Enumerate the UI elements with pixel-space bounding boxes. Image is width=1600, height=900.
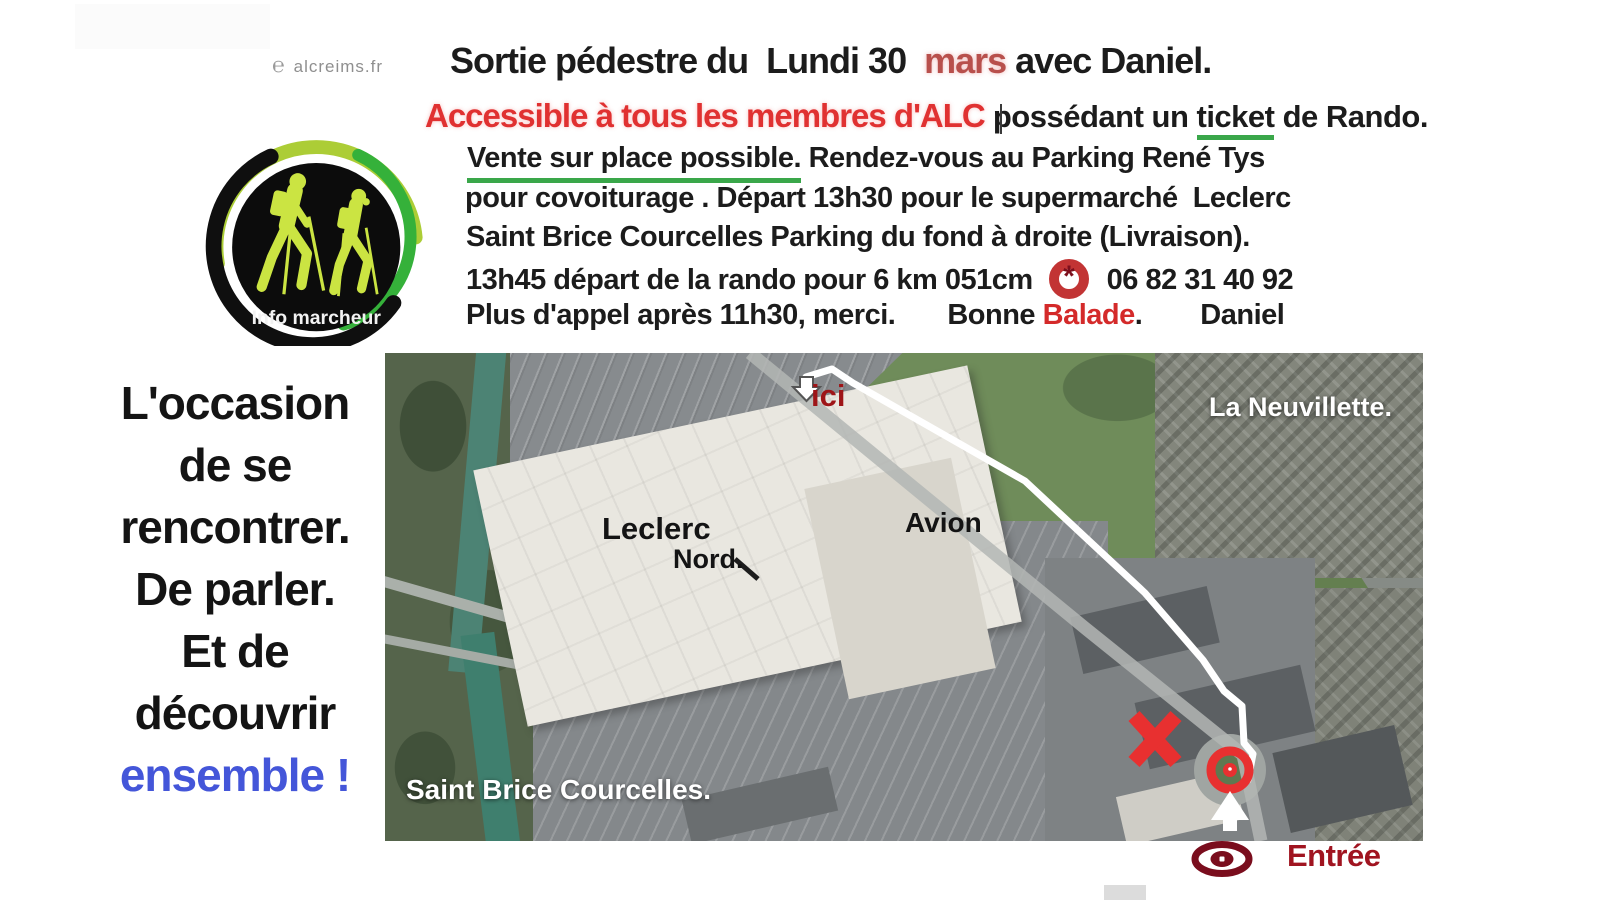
closing-text: Plus d'appel après 11h30, merci. <box>466 299 895 331</box>
logo-caption: Info marcheur <box>252 307 382 329</box>
slogan-line: L'occasion <box>80 372 390 434</box>
signature: Daniel <box>1200 299 1284 331</box>
site-logo-icon: ℮ <box>272 54 286 77</box>
site-line: ℮alcreims.fr <box>272 54 383 78</box>
text-cursor-artifact <box>1000 104 1002 134</box>
map-label-ici: ici <box>811 380 845 413</box>
slogan-highlight: ensemble ! <box>80 744 390 806</box>
vente-underlined: Vente sur place possible. <box>467 142 801 183</box>
phone-number: 06 82 31 40 92 <box>1107 264 1294 296</box>
access-end-text: de Rando. <box>1274 99 1427 134</box>
slogan-block: L'occasion de se rencontrer. De parler. … <box>80 372 390 806</box>
flyer-line-access: Accessible à tous les membres d'ALC poss… <box>425 97 1428 135</box>
access-red-text: Accessible à tous les membres d'ALC <box>425 97 985 134</box>
slogan-line: rencontrer. <box>80 496 390 558</box>
asterisk-glyph: * <box>1063 262 1074 292</box>
map-label-leclerc: Leclerc <box>602 513 711 546</box>
site-url: alcreims.fr <box>294 57 383 76</box>
title-part2: avec Daniel. <box>1006 40 1211 81</box>
entrance-eye-icon <box>1190 840 1256 878</box>
title-month: mars <box>924 40 1006 81</box>
club-logo: Info marcheur <box>188 78 450 346</box>
flyer-line-vente: Vente sur place possible. Rendez-vous au… <box>467 142 1265 175</box>
slogan-line: découvrir <box>80 682 390 744</box>
faint-corner-box <box>75 4 270 49</box>
map-residential-area <box>1155 353 1423 578</box>
balade-dot: . <box>1135 299 1143 331</box>
phone-asterisk-icon: * <box>1049 259 1089 299</box>
vente-rest: Rendez-vous au Parking René Tys <box>801 142 1265 174</box>
entree-label: Entrée <box>1287 838 1380 874</box>
access-mid-text: possédant un <box>985 99 1197 134</box>
depart-text: 13h45 départ de la rando pour 6 km 051cm <box>466 264 1033 296</box>
hikers-logo-icon: Info marcheur <box>188 78 450 346</box>
satellite-map: ici La Neuvillette. Leclerc Nord. Avion … <box>385 353 1423 841</box>
flyer-title: Sortie pédestre du Lundi 30 mars avec Da… <box>450 40 1211 82</box>
map-label-avion: Avion <box>905 508 982 537</box>
map-label-nord: Nord. <box>673 545 744 573</box>
slogan-line: de se <box>80 434 390 496</box>
map-label-saint-brice: Saint Brice Courcelles. <box>406 775 711 804</box>
slogan-line: De parler. <box>80 558 390 620</box>
ticket-underlined: ticket <box>1197 99 1275 140</box>
flyer-line-depart: 13h45 départ de la rando pour 6 km 051cm… <box>466 259 1293 299</box>
map-roundabout <box>1194 734 1266 806</box>
map-label-la-neuvillette: La Neuvillette. <box>1209 393 1392 421</box>
balade-red-text: Balade <box>1043 299 1135 331</box>
flyer-line-covoiturage: pour covoiturage . Départ 13h30 pour le … <box>465 182 1291 215</box>
bonne-text: Bonne <box>947 299 1042 331</box>
slogan-line: Et de <box>80 620 390 682</box>
flyer-line-closing: Plus d'appel après 11h30, merci.Bonne Ba… <box>466 299 1284 332</box>
bottom-edge-artifact <box>1104 885 1146 900</box>
title-part1: Sortie pédestre du Lundi 30 <box>450 40 924 81</box>
flyer-line-saint-brice: Saint Brice Courcelles Parking du fond à… <box>466 221 1250 254</box>
